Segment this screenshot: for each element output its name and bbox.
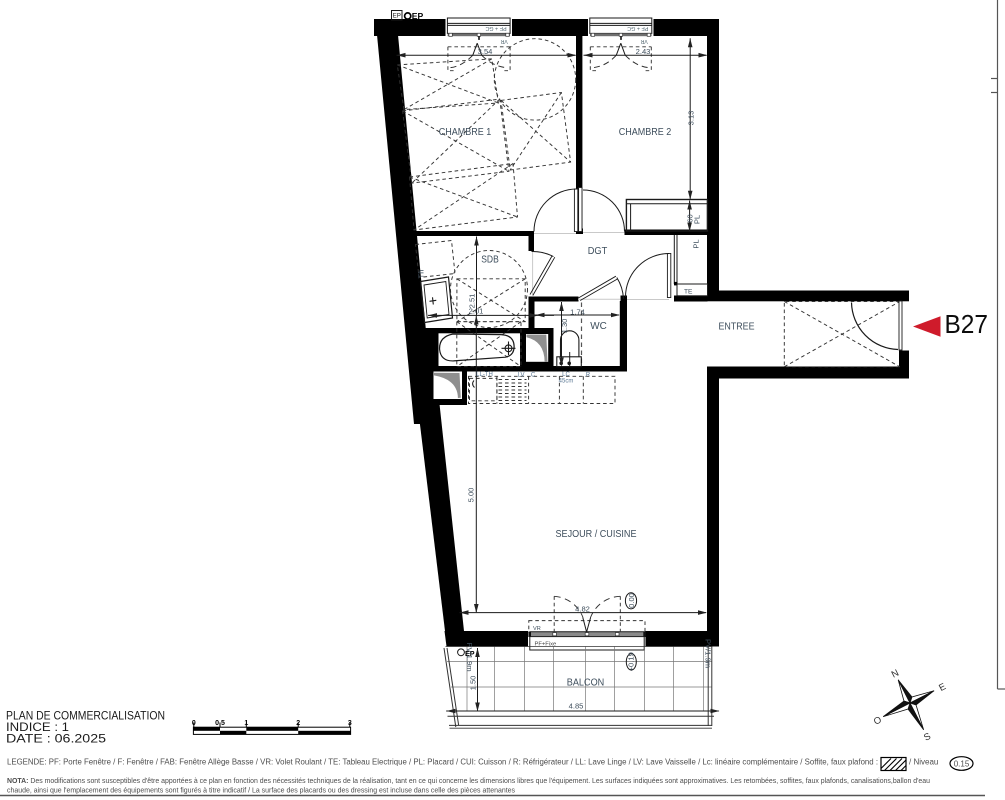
svg-text:LL-TH: LL-TH xyxy=(476,372,493,378)
svg-text:VR: VR xyxy=(533,626,541,632)
svg-text:4.85: 4.85 xyxy=(569,702,584,711)
svg-text:LV: LV xyxy=(518,373,525,379)
svg-text:B27: B27 xyxy=(945,309,989,339)
svg-text:PF + GC: PF + GC xyxy=(485,25,506,31)
svg-text:CHAMBRE 1: CHAMBRE 1 xyxy=(439,127,492,138)
svg-text:SEJOUR / CUISINE: SEJOUR / CUISINE xyxy=(556,529,637,540)
svg-text:VR: VR xyxy=(640,38,647,44)
svg-text:chaude, ainsi que l'emplacemen: chaude, ainsi que l'emplacement des équi… xyxy=(7,786,515,795)
svg-text:CHAMBRE 2: CHAMBRE 2 xyxy=(619,127,672,138)
svg-text:DGT: DGT xyxy=(588,246,608,257)
svg-text:DATE : 06.2025: DATE : 06.2025 xyxy=(6,734,106,746)
svg-text:PL: PL xyxy=(693,215,702,224)
svg-text:R: R xyxy=(586,373,591,379)
svg-text:1.50: 1.50 xyxy=(469,676,478,691)
svg-text:2.43: 2.43 xyxy=(636,47,651,56)
svg-text:Th: Th xyxy=(417,270,426,279)
svg-text:VR: VR xyxy=(500,38,507,44)
svg-text:O: O xyxy=(872,715,884,728)
svg-text:3.54: 3.54 xyxy=(478,47,493,56)
svg-text:0.00: 0.00 xyxy=(627,593,636,608)
svg-text:WC: WC xyxy=(590,321,607,332)
svg-text:BALCON: BALCON xyxy=(567,678,605,689)
svg-text:4.82: 4.82 xyxy=(575,604,590,613)
svg-text:C: C xyxy=(531,373,536,379)
svg-text:3.13: 3.13 xyxy=(687,111,696,126)
svg-text:0.15: 0.15 xyxy=(954,760,970,769)
svg-text:NOTA: Des modifications sont: NOTA: Des modifications sont susceptible… xyxy=(7,776,930,785)
svg-text:SDB: SDB xyxy=(481,255,499,266)
svg-text:EP: EP xyxy=(412,11,424,21)
svg-text:1.74: 1.74 xyxy=(570,307,585,316)
svg-text:N: N xyxy=(890,668,901,681)
svg-text:45cm: 45cm xyxy=(559,379,574,385)
svg-text:TE: TE xyxy=(684,289,693,296)
svg-text:PLAN DE COMMERCIALISATION: PLAN DE COMMERCIALISATION xyxy=(6,711,165,723)
svg-text:LC: LC xyxy=(562,372,570,378)
svg-text:2.51: 2.51 xyxy=(468,294,477,309)
svg-text:E: E xyxy=(937,681,948,694)
svg-text:S: S xyxy=(922,731,933,744)
svg-text:LEGENDE: PF: Porte Fenêtre / F: LEGENDE: PF: Porte Fenêtre / F: Fenêtre … xyxy=(7,758,878,767)
svg-text:PL: PL xyxy=(692,239,701,248)
svg-text:INDICE : 1: INDICE : 1 xyxy=(6,722,69,734)
svg-text:5.00: 5.00 xyxy=(467,488,476,503)
svg-text:PV/1.9m: PV/1.9m xyxy=(704,639,713,668)
svg-text:PV/1.9m: PV/1.9m xyxy=(465,642,474,671)
svg-text:+0.19: +0.19 xyxy=(627,652,636,671)
svg-text:ENTREE: ENTREE xyxy=(719,322,755,333)
svg-text:PF + GC: PF + GC xyxy=(627,25,648,31)
svg-text:EP: EP xyxy=(393,13,401,20)
svg-text:1.30: 1.30 xyxy=(560,319,569,334)
svg-text:/ Niveau: / Niveau xyxy=(909,758,938,767)
